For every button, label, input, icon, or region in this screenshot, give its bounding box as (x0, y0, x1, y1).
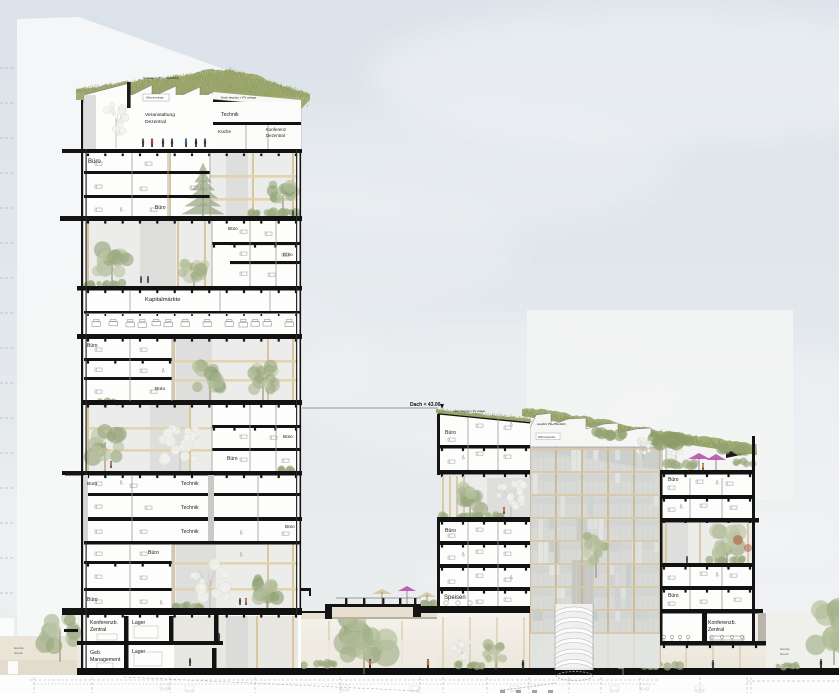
svg-text:Technik: Technik (181, 481, 199, 487)
svg-text:Büro: Büro (87, 481, 97, 487)
svg-text:Dezentral: Dezentral (145, 119, 166, 125)
svg-text:Technik: Technik (221, 112, 239, 118)
svg-text:Büro: Büro (155, 386, 165, 392)
svg-text:Küche: Küche (218, 129, 231, 134)
svg-text:westlich PV + Nordlicht: westlich PV + Nordlicht (537, 422, 566, 426)
svg-text:Dach < 43.00: Dach < 43.00 (410, 402, 441, 408)
svg-text:Kapitalmärkte: Kapitalmärkte (145, 297, 180, 303)
svg-text:Büro: Büro (668, 593, 679, 599)
svg-text:Büro: Büro (668, 477, 679, 483)
svg-text:Büro: Büro (87, 343, 98, 349)
svg-text:Technik: Technik (181, 505, 199, 511)
svg-text:Konferenz: Konferenz (266, 127, 286, 132)
svg-text:Büro: Büro (155, 205, 166, 211)
svg-text:Büro: Büro (87, 597, 98, 603)
svg-text:Büro: Büro (285, 524, 295, 529)
svg-text:Dezentral: Dezentral (266, 133, 285, 138)
svg-text:Büro: Büro (228, 226, 238, 231)
svg-text:Lager: Lager (132, 620, 146, 626)
svg-text:Wärmeeinträge: Wärmeeinträge (146, 96, 164, 100)
svg-text:Veranstaltung: Veranstaltung (145, 112, 175, 118)
svg-text:Grund: Grund (14, 651, 23, 655)
svg-text:nach begrünt + PV anlage: nach begrünt + PV anlage (454, 409, 486, 413)
svg-text:Büro: Büro (445, 528, 456, 534)
svg-text:Grenze: Grenze (14, 646, 24, 650)
svg-text:Büro: Büro (283, 434, 293, 439)
svg-text:Büro: Büro (283, 252, 293, 257)
svg-text:Grund: Grund (780, 652, 789, 656)
svg-text:Büro: Büro (148, 550, 159, 556)
svg-text:Büro: Büro (88, 159, 101, 165)
svg-text:Geb.: Geb. (90, 650, 101, 656)
svg-text:Management: Management (90, 657, 121, 663)
svg-text:Dach begrünt + PV anlage: Dach begrünt + PV anlage (221, 96, 257, 100)
svg-text:Konferenzb.: Konferenzb. (708, 620, 736, 626)
svg-text:Technik: Technik (181, 529, 199, 535)
svg-text:Grenze: Grenze (780, 647, 790, 651)
svg-text:Speisen: Speisen (444, 595, 466, 601)
svg-text:Konferenzb.: Konferenzb. (90, 620, 118, 626)
svg-text:Stadtdach (PV + Nordlicht): Stadtdach (PV + Nordlicht) (143, 76, 179, 80)
svg-text:Zentral: Zentral (708, 627, 724, 633)
svg-text:Büro: Büro (445, 430, 456, 436)
svg-text:Wärmespeicher: Wärmespeicher (538, 436, 556, 439)
svg-text:Zentral: Zentral (90, 627, 106, 633)
svg-text:Büro: Büro (227, 456, 238, 462)
